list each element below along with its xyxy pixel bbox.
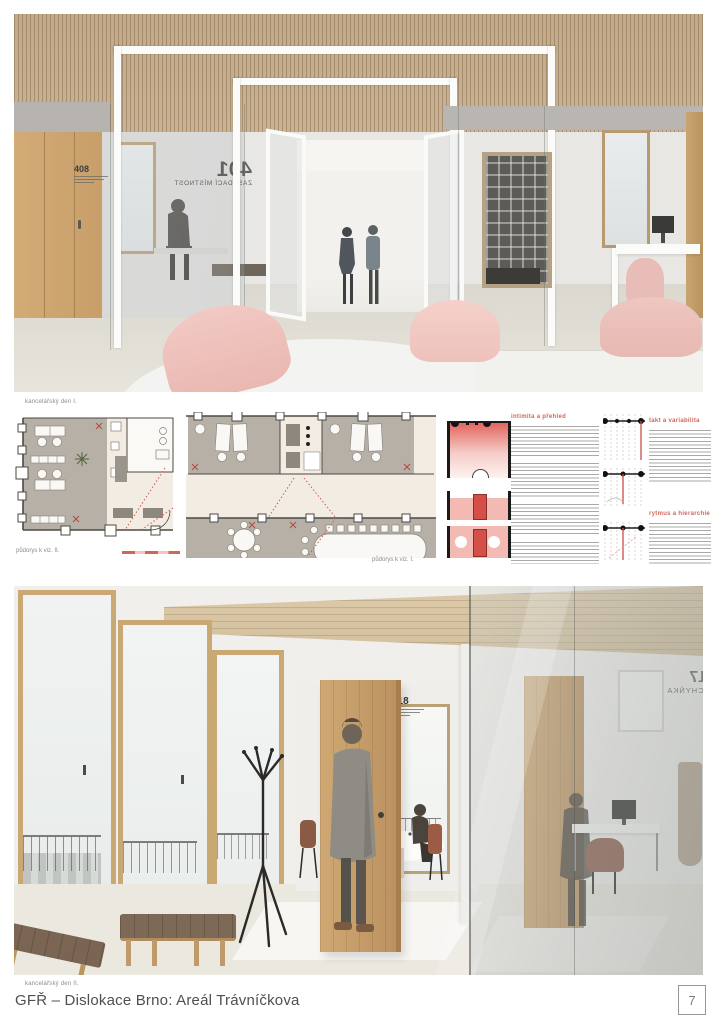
- door-seam: [74, 132, 75, 318]
- diagram-door-block: [473, 529, 487, 557]
- pink-chair: [600, 297, 702, 357]
- door-handle: [78, 220, 81, 229]
- diagram-dot: [483, 421, 491, 427]
- bench-leg: [126, 940, 131, 966]
- scale-bar: [122, 551, 180, 554]
- monitor: [652, 216, 674, 233]
- diagram-circle: [488, 536, 500, 548]
- leather-bench: [120, 914, 236, 941]
- concept-heading-1: intimita a přehled: [511, 414, 566, 420]
- concept-paragraph: [649, 430, 711, 482]
- plan-right-caption: půdorys k viz. I.: [372, 557, 414, 563]
- floor-plan-left: [15, 412, 177, 544]
- concept-paragraph: [511, 426, 599, 456]
- diagram-door-closed: [447, 491, 511, 520]
- page-number-box: 7: [678, 985, 706, 1015]
- render-bottom-caption: kancelářský den II.: [25, 981, 79, 987]
- corridor-view: [297, 140, 425, 312]
- room-sign-text-line: [74, 179, 104, 180]
- balcony-railing: [123, 841, 197, 873]
- diagram-tick: [475, 421, 478, 425]
- tall-wood-cabinet: [686, 112, 703, 318]
- window-handle: [181, 775, 184, 784]
- concrete-lintel-left: [14, 102, 110, 132]
- floor-plan-right: [186, 412, 436, 558]
- walking-man-silhouette: [314, 718, 394, 958]
- render-top-caption: kancelářský den I.: [25, 399, 77, 405]
- diagram-tick: [466, 421, 469, 425]
- glass-frame-beam: [114, 46, 555, 54]
- diagram-door-glazed: [447, 526, 511, 558]
- concept-heading-2: takt a variabilita: [649, 418, 700, 424]
- glass-seam: [544, 106, 545, 346]
- render-bottom-visualization: 418: [14, 586, 703, 975]
- glass-frame-beam: [233, 78, 457, 85]
- people-silhouettes: [331, 224, 395, 312]
- office-desk-right: [616, 244, 700, 254]
- bench-leg: [152, 940, 157, 966]
- board-title: GFŘ – Dislokace Brno: Areál Trávníčkova: [15, 992, 300, 1009]
- glass-seam: [469, 586, 471, 975]
- concept-heading-3: rytmus a hierarchie: [649, 511, 710, 517]
- room-sign-text-line: [74, 176, 108, 177]
- wall-corner-post: [461, 644, 469, 924]
- window-handle: [83, 765, 86, 775]
- window: [602, 130, 650, 248]
- concept-paragraph: [511, 504, 599, 536]
- bench-leg: [194, 940, 199, 966]
- concept-paragraph: [511, 463, 599, 497]
- open-glass-door-left: [266, 128, 306, 321]
- diagram-door-block: [473, 494, 487, 520]
- concrete-lintel-right: [444, 106, 703, 130]
- diagram-grid-column: [603, 414, 645, 566]
- page-number: 7: [688, 993, 695, 1008]
- glass-frame-post: [233, 78, 240, 330]
- presentation-board: 408 401 ZASEDACÍ MÍSTNOST: [0, 0, 717, 1024]
- vending-base: [486, 268, 540, 284]
- concept-paragraph: [511, 542, 599, 564]
- vending-machine: [482, 152, 552, 288]
- pink-chair: [410, 300, 500, 362]
- render-top-visualization: 408 401 ZASEDACÍ MÍSTNOST: [14, 14, 703, 392]
- plan-left-caption: půdorys k viz. II.: [16, 548, 59, 554]
- monitor-stand: [661, 233, 665, 243]
- wooden-door-left: [14, 132, 102, 318]
- glass-frame-post: [114, 46, 121, 348]
- door-seam: [44, 132, 45, 318]
- diagram-intimacy-room: [447, 421, 511, 478]
- bench-leg: [220, 940, 225, 966]
- glass-seam: [110, 104, 111, 350]
- balcony-railing: [23, 835, 101, 871]
- diagram-dot: [451, 421, 459, 427]
- glass-seam: [574, 586, 575, 975]
- diagram-door-arc: [472, 469, 489, 478]
- diagram-circle: [455, 536, 467, 548]
- concept-paragraph: [649, 523, 711, 565]
- room-sign-text-line: [74, 182, 94, 183]
